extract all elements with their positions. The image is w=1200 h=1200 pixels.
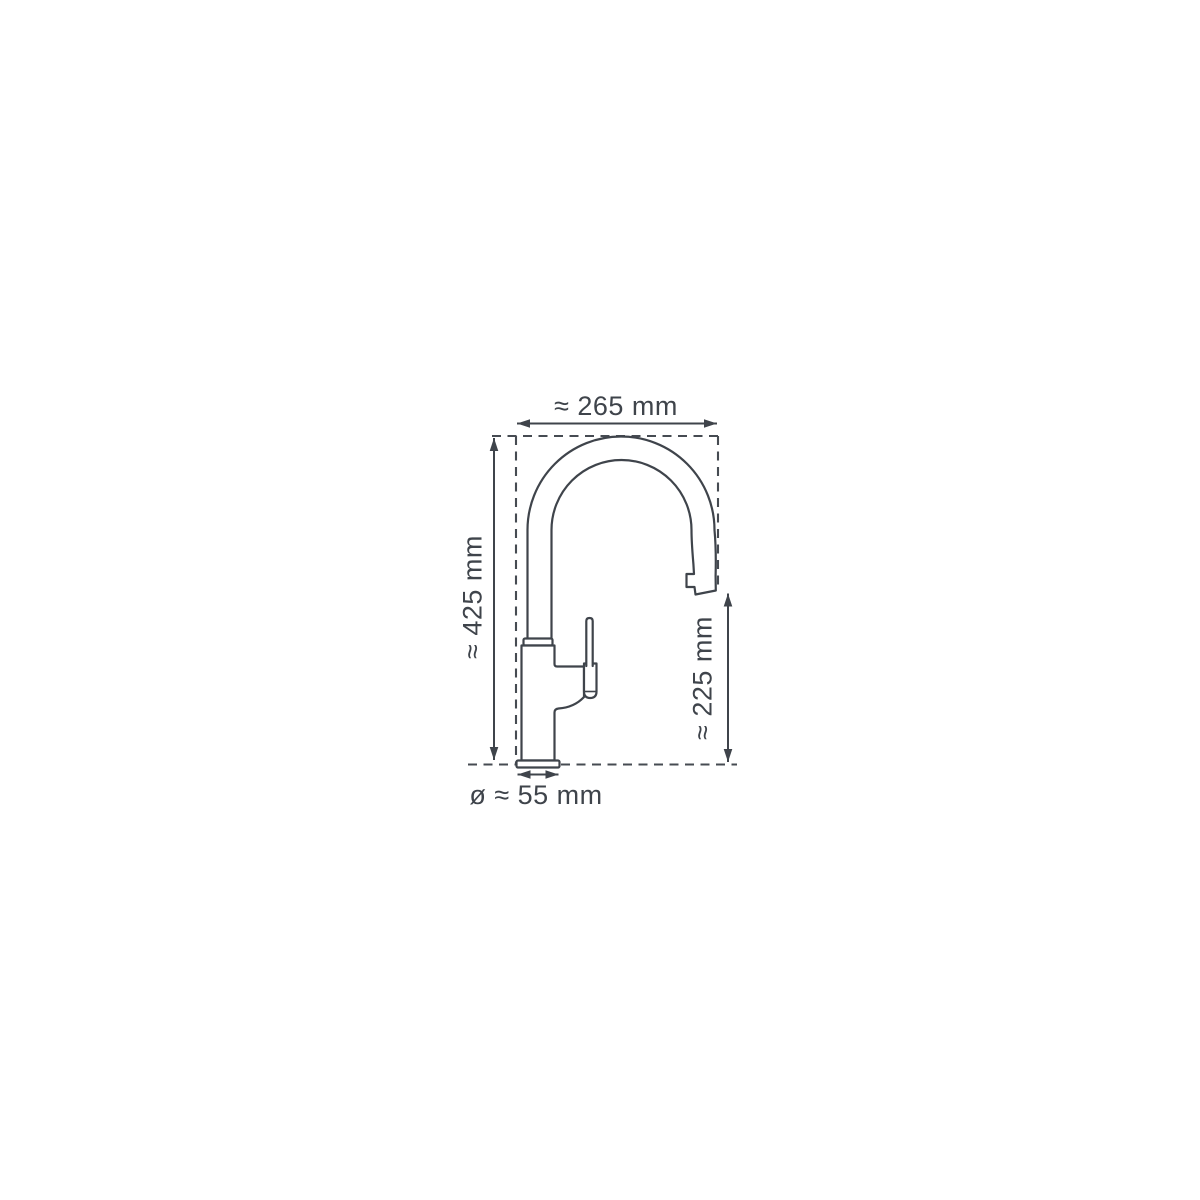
faucet-base-flange (517, 761, 560, 768)
dimension-spout-width: ≈ 265 mm (517, 391, 717, 424)
faucet-drawing (517, 437, 716, 768)
dimension-base-diameter: ø ≈ 55 mm (469, 775, 602, 811)
dimension-outlet-height: ≈ 225 mm (688, 594, 729, 763)
faucet-spout-outline (528, 437, 716, 640)
faucet-handle-base (584, 664, 597, 699)
faucet-body-outline (522, 646, 585, 761)
faucet-handle-lever (586, 618, 592, 666)
diagram-canvas: ≈ 265 mm ≈ 425 mm ≈ 225 mm ø ≈ 55 mm (0, 0, 1200, 1200)
dimension-label-base-diameter: ø ≈ 55 mm (469, 780, 602, 810)
faucet-dimension-diagram: ≈ 265 mm ≈ 425 mm ≈ 225 mm ø ≈ 55 mm (0, 0, 1200, 1200)
dimension-label-total-height: ≈ 425 mm (458, 535, 488, 659)
dimension-total-height: ≈ 425 mm (458, 438, 495, 760)
dimension-label-spout-width: ≈ 265 mm (554, 391, 678, 421)
dimension-label-outlet-height: ≈ 225 mm (688, 616, 718, 740)
